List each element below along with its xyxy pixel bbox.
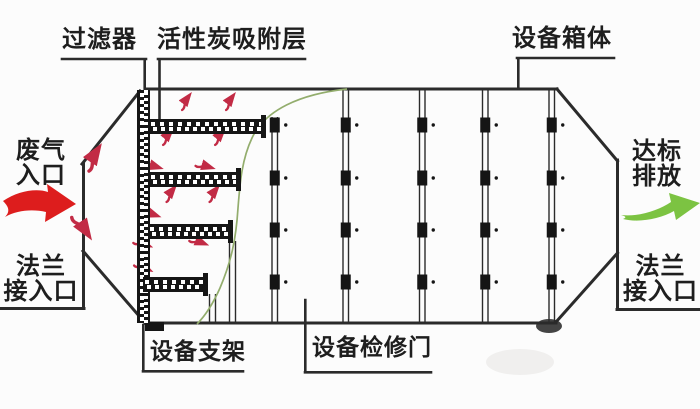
panel-clip (341, 118, 351, 133)
flow-arrow-icon (226, 99, 231, 111)
discharge-arrow-icon (621, 193, 700, 221)
panel-rivet (284, 228, 287, 231)
panel-rivet (561, 176, 564, 179)
flow-arrow-icon (182, 99, 187, 111)
panel-clip (270, 171, 280, 186)
base-block-right (536, 319, 562, 333)
panel-seams-group (270, 90, 565, 323)
panel-clip (547, 118, 557, 133)
panel-clip (417, 275, 427, 290)
panel-rivet (495, 228, 498, 231)
panel-clip (417, 118, 427, 133)
panel-rivet (432, 123, 435, 126)
panel-rivet (561, 228, 564, 231)
filter-label: 过滤器 (62, 27, 137, 52)
panel-clip (480, 275, 490, 290)
panel-rivet (432, 228, 435, 231)
discharge-label: 达标 排放 (630, 139, 684, 189)
waste-gas-inlet-arrow-icon (3, 184, 76, 222)
flow-arrow-icon (189, 239, 201, 244)
base-block-left (145, 322, 164, 331)
panel-rivet (284, 280, 287, 283)
panel-clip (547, 275, 557, 290)
panel-clip (480, 118, 490, 133)
panel-rivet (561, 280, 564, 283)
inlet-top-slant (82, 91, 140, 164)
panel-rivet (284, 123, 287, 126)
panel-clip (417, 223, 427, 238)
panel-rivet (355, 280, 358, 283)
panel-clip (417, 171, 427, 186)
flow-arrow-icon (167, 191, 172, 203)
panel-rivet (355, 176, 358, 179)
panel-clip (270, 275, 280, 290)
panel-rivet (432, 176, 435, 179)
filter-leader (62, 59, 146, 90)
panel-rivet (495, 123, 498, 126)
flange-inlet-label: 法兰 接入口 (0, 254, 82, 304)
panel-clip (547, 223, 557, 238)
cabinet-leader (517, 58, 614, 88)
carbon-layer-label: 活性炭吸附层 (157, 27, 307, 52)
panel-clip (547, 171, 557, 186)
panel-seam (272, 117, 278, 323)
flow-arrow-icon (196, 163, 208, 168)
panel-clip (341, 223, 351, 238)
carbon-bed-layer-4 (143, 277, 205, 292)
flange-outlet-label: 法兰 接入口 (621, 254, 700, 304)
panel-rivet (495, 176, 498, 179)
panel-clip (270, 118, 280, 133)
carbon-bed-layer-3 (148, 224, 230, 239)
panel-rivet (284, 176, 287, 179)
diagram-stage: 过滤器 活性炭吸附层 设备箱体 废气 入口 法兰 接入口 达标 排放 法兰 接入… (0, 0, 700, 409)
panel-rivet (495, 280, 498, 283)
watermark-smudge (486, 349, 554, 375)
panel-clip (270, 223, 280, 238)
panel-clip (480, 171, 490, 186)
outlet-bottom-slant (556, 253, 618, 322)
cabinet-label: 设备箱体 (512, 26, 612, 51)
carbon-bed-layer-1 (149, 119, 263, 134)
panel-clip (341, 171, 351, 186)
carbon-bed-layer-2 (149, 172, 238, 187)
flow-arrow-icon (163, 134, 168, 146)
support-label: 设备支架 (150, 340, 246, 365)
flow-arrow-icon (215, 134, 220, 146)
outlet-top-slant (557, 89, 618, 161)
panel-rivet (561, 123, 564, 126)
panel-clip (480, 223, 490, 238)
panel-rivet (355, 123, 358, 126)
waste-gas-inlet-label: 废气 入口 (16, 138, 66, 188)
flow-arrow-icon (210, 191, 215, 203)
panel-rivet (432, 280, 435, 283)
label-leader-lines (0, 58, 700, 372)
panel-rivet (355, 228, 358, 231)
access-door-label: 设备检修门 (312, 336, 432, 361)
panel-clip (341, 275, 351, 290)
